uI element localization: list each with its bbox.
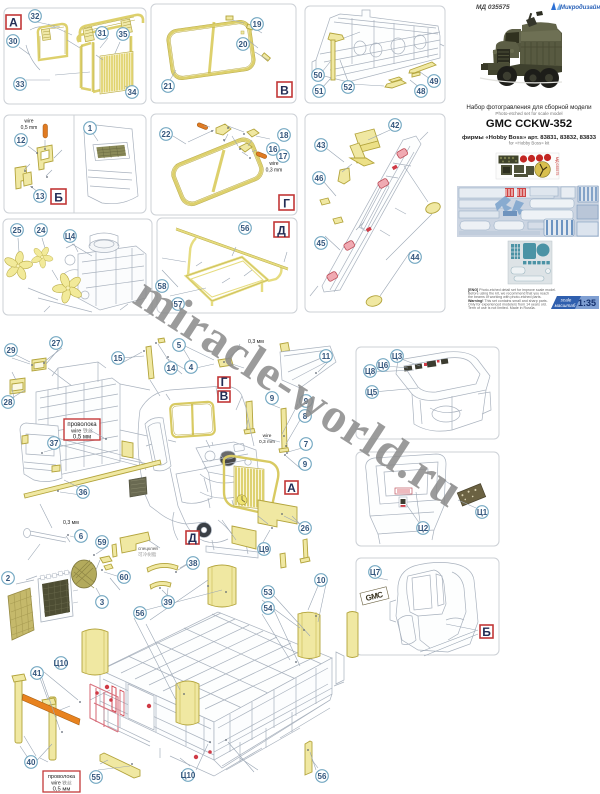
svg-text:Ц10: Ц10 xyxy=(181,771,196,780)
svg-text:Ц5: Ц5 xyxy=(367,388,378,397)
svg-text:МД 035575: МД 035575 xyxy=(476,4,510,11)
svg-text:59: 59 xyxy=(98,538,107,547)
svg-text:40: 40 xyxy=(27,758,36,767)
svg-text:53: 53 xyxy=(264,588,273,597)
svg-text:1:35: 1:35 xyxy=(578,298,596,308)
svg-text:19: 19 xyxy=(253,20,262,29)
svg-text:11: 11 xyxy=(322,352,331,361)
svg-text:scale: scale xyxy=(561,298,572,303)
svg-text:43: 43 xyxy=(317,141,326,150)
svg-text:Ц2: Ц2 xyxy=(418,524,429,533)
svg-text:4: 4 xyxy=(189,363,194,372)
svg-text:33: 33 xyxy=(16,80,25,89)
svg-text:wire 铁丝: wire 铁丝 xyxy=(70,428,93,435)
svg-text:9: 9 xyxy=(303,460,308,469)
svg-text:Ц1: Ц1 xyxy=(477,508,488,517)
svg-text:51: 51 xyxy=(315,87,324,96)
svg-text:МД 035575: МД 035575 xyxy=(555,157,559,175)
svg-text:21: 21 xyxy=(164,82,173,91)
svg-text:16: 16 xyxy=(269,145,278,154)
svg-text:0,5 мм: 0,5 мм xyxy=(53,787,71,793)
svg-text:0,5 мм: 0,5 мм xyxy=(73,435,91,441)
svg-text:Ц4: Ц4 xyxy=(65,232,76,241)
svg-text:А: А xyxy=(287,481,296,495)
svg-text:wire: wire xyxy=(24,119,33,125)
svg-text:Набор фотогравления для сборно: Набор фотогравления для сборной модели xyxy=(466,104,592,111)
svg-text:55: 55 xyxy=(92,773,101,782)
svg-text:Д: Д xyxy=(277,224,286,238)
svg-text:Г: Г xyxy=(283,197,290,211)
svg-text:54: 54 xyxy=(264,604,273,613)
svg-text:56: 56 xyxy=(318,772,327,781)
svg-text:44: 44 xyxy=(411,253,420,262)
svg-text:可冷树脂: 可冷树脂 xyxy=(138,551,157,558)
svg-text:41: 41 xyxy=(33,669,42,678)
svg-text:32: 32 xyxy=(31,12,40,21)
svg-text:29: 29 xyxy=(7,346,16,355)
svg-text:1: 1 xyxy=(88,124,93,133)
svg-text:34: 34 xyxy=(128,88,137,97)
svg-text:10: 10 xyxy=(317,576,326,585)
svg-text:49: 49 xyxy=(430,77,439,86)
svg-text:2: 2 xyxy=(6,574,11,583)
svg-text:30: 30 xyxy=(9,37,18,46)
svg-text:В: В xyxy=(220,389,229,403)
svg-text:56: 56 xyxy=(241,224,250,233)
svg-text:0,3 мм: 0,3 мм xyxy=(63,520,79,526)
svg-text:17: 17 xyxy=(279,152,288,161)
svg-text:Ц7: Ц7 xyxy=(370,568,381,577)
svg-text:36: 36 xyxy=(79,488,88,497)
svg-text:Б: Б xyxy=(54,191,63,205)
svg-text:12: 12 xyxy=(17,136,26,145)
svg-text:27: 27 xyxy=(52,339,61,348)
svg-text:24: 24 xyxy=(37,226,46,235)
svg-text:спецклей: спецклей xyxy=(138,545,158,551)
svg-text:масштаб: масштаб xyxy=(555,303,576,308)
svg-text:Ц6: Ц6 xyxy=(378,361,389,370)
svg-text:Ц8: Ц8 xyxy=(365,367,376,376)
svg-text:45: 45 xyxy=(317,239,326,248)
svg-text:22: 22 xyxy=(162,130,171,139)
svg-text:28: 28 xyxy=(4,398,13,407)
svg-text:46: 46 xyxy=(315,174,324,183)
svg-text:18: 18 xyxy=(280,131,289,140)
svg-text:wire: wire xyxy=(269,161,278,167)
svg-text:проволока: проволока xyxy=(67,422,97,428)
svg-text:52: 52 xyxy=(344,83,353,92)
svg-text:13: 13 xyxy=(36,192,45,201)
svg-text:0,3 mm: 0,3 mm xyxy=(259,439,275,445)
svg-text:Микродизайн: Микродизайн xyxy=(560,4,600,11)
svg-text:0,3 mm: 0,3 mm xyxy=(266,168,283,174)
svg-text:38: 38 xyxy=(189,559,198,568)
svg-text:wire 铁丝: wire 铁丝 xyxy=(51,780,72,787)
svg-text:31: 31 xyxy=(98,29,107,38)
svg-text:В: В xyxy=(280,84,289,98)
svg-text:Ц10: Ц10 xyxy=(54,659,69,668)
svg-text:50: 50 xyxy=(314,71,323,80)
svg-text:35: 35 xyxy=(119,30,128,39)
svg-text:А: А xyxy=(9,16,18,30)
svg-text:6: 6 xyxy=(79,532,84,541)
svg-text:wire: wire xyxy=(263,433,272,439)
svg-text:60: 60 xyxy=(120,573,129,582)
svg-text:3: 3 xyxy=(100,598,105,607)
svg-text:Term of use is not limited. Ma: Term of use is not limited. Made in Russ… xyxy=(468,306,536,310)
svg-text:Photo-etched set for scale mod: Photo-etched set for scale model xyxy=(495,111,562,116)
svg-text:20: 20 xyxy=(239,40,248,49)
svg-text:7: 7 xyxy=(304,440,309,449)
svg-text:Ц9: Ц9 xyxy=(259,545,270,554)
svg-text:Б: Б xyxy=(482,625,491,639)
svg-text:проволока: проволока xyxy=(48,774,76,780)
svg-text:39: 39 xyxy=(164,598,173,607)
svg-text:0,5 mm: 0,5 mm xyxy=(21,125,38,131)
svg-text:Ц3: Ц3 xyxy=(392,352,403,361)
svg-text:37: 37 xyxy=(50,439,59,448)
svg-text:25: 25 xyxy=(13,226,22,235)
svg-text:GMC CCKW-352: GMC CCKW-352 xyxy=(486,118,572,130)
svg-text:for «Hobby Boss» kit: for «Hobby Boss» kit xyxy=(509,141,550,146)
svg-text:15: 15 xyxy=(114,354,123,363)
svg-text:56: 56 xyxy=(136,609,145,618)
svg-text:Д: Д xyxy=(188,531,197,545)
svg-text:48: 48 xyxy=(417,87,426,96)
svg-text:26: 26 xyxy=(301,524,310,533)
svg-text:42: 42 xyxy=(391,121,400,130)
svg-text:14: 14 xyxy=(167,364,176,373)
